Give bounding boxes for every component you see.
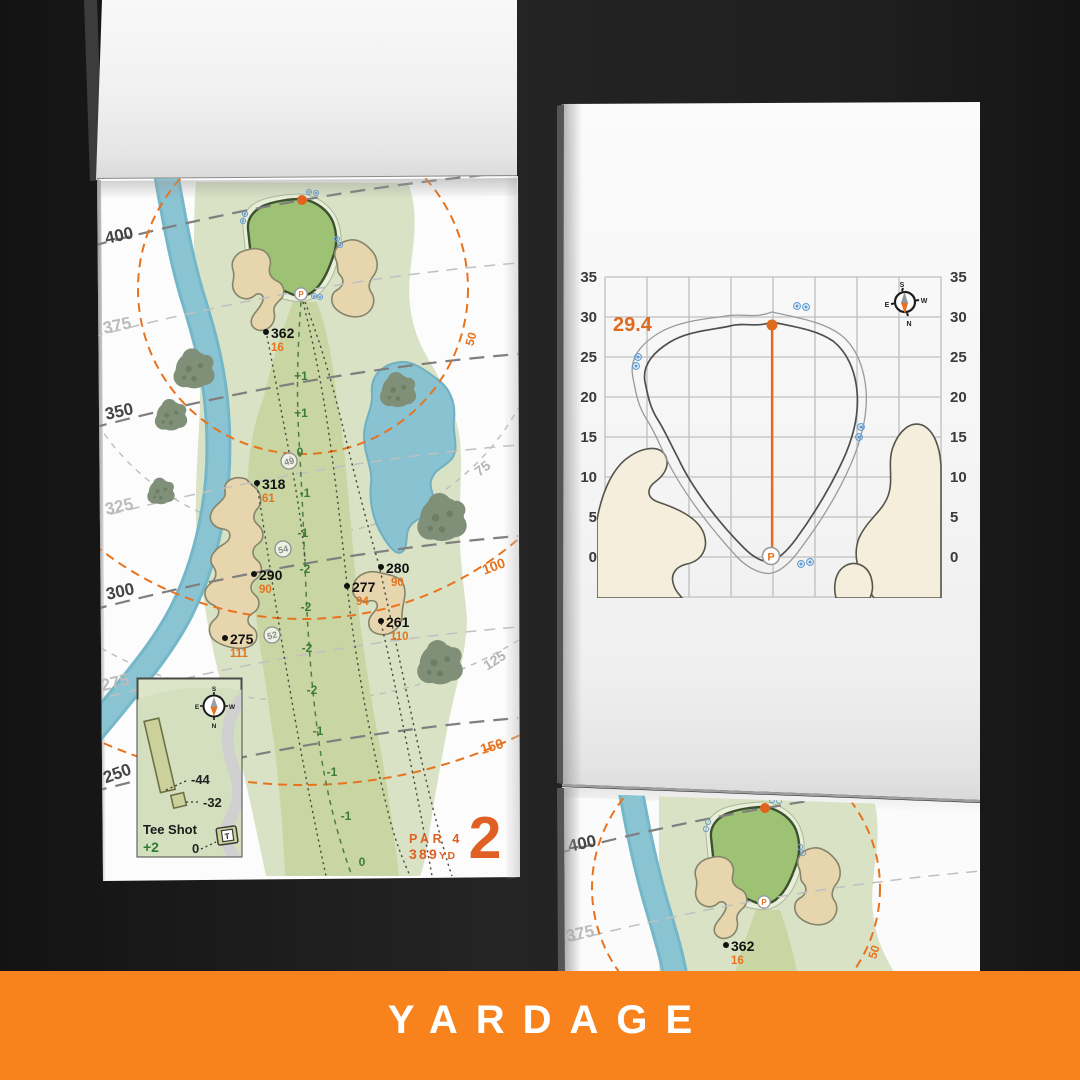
svg-text:277: 277 <box>352 579 376 595</box>
svg-text:N: N <box>212 723 217 730</box>
svg-text:5: 5 <box>950 509 958 526</box>
svg-text:+1: +1 <box>294 369 308 383</box>
svg-text:90: 90 <box>259 584 272 596</box>
svg-text:35: 35 <box>950 269 967 286</box>
svg-text:25: 25 <box>580 349 597 366</box>
svg-text:0: 0 <box>297 445 304 459</box>
svg-text:29.4: 29.4 <box>613 314 653 336</box>
svg-text:E: E <box>195 704 200 711</box>
svg-text:261: 261 <box>386 614 410 630</box>
svg-text:90: 90 <box>391 577 404 589</box>
svg-text:0: 0 <box>359 855 366 869</box>
svg-text:S: S <box>212 686 217 693</box>
svg-text:YARDAGE: YARDAGE <box>388 998 710 1042</box>
svg-text:-44: -44 <box>191 772 211 787</box>
svg-text:PAR 4: PAR 4 <box>409 832 463 846</box>
svg-text:15: 15 <box>950 429 967 446</box>
svg-text:P: P <box>761 898 767 907</box>
svg-text:5: 5 <box>589 509 597 526</box>
svg-text:30: 30 <box>580 309 597 326</box>
svg-text:P: P <box>767 552 774 564</box>
svg-text:280: 280 <box>386 560 410 576</box>
svg-text:362: 362 <box>731 938 755 954</box>
svg-text:-1: -1 <box>341 809 352 823</box>
svg-text:-2: -2 <box>302 641 313 655</box>
svg-text:S: S <box>900 282 905 289</box>
svg-text:15: 15 <box>580 429 597 446</box>
svg-text:+2: +2 <box>143 839 159 855</box>
svg-text:-2: -2 <box>300 562 311 576</box>
svg-text:30: 30 <box>950 309 967 326</box>
svg-text:94: 94 <box>356 596 369 608</box>
svg-text:35: 35 <box>580 269 597 286</box>
svg-text:275: 275 <box>230 631 254 647</box>
svg-text:362: 362 <box>271 325 295 341</box>
svg-text:-1: -1 <box>298 526 309 540</box>
svg-text:61: 61 <box>262 493 275 505</box>
svg-text:10: 10 <box>950 469 967 486</box>
svg-text:0: 0 <box>950 549 958 566</box>
svg-text:111: 111 <box>230 648 249 660</box>
svg-text:P: P <box>298 290 304 299</box>
svg-text:W: W <box>921 298 928 305</box>
svg-text:10: 10 <box>580 469 597 486</box>
svg-text:290: 290 <box>259 567 283 583</box>
svg-text:318: 318 <box>262 476 286 492</box>
svg-text:-1: -1 <box>327 765 338 779</box>
svg-text:20: 20 <box>580 389 597 406</box>
svg-text:-32: -32 <box>203 795 222 810</box>
svg-text:16: 16 <box>271 342 284 354</box>
svg-text:Tee Shot: Tee Shot <box>143 822 198 837</box>
svg-text:110: 110 <box>390 631 409 643</box>
svg-text:N: N <box>906 321 911 328</box>
svg-text:25: 25 <box>950 349 967 366</box>
svg-text:E: E <box>885 302 890 309</box>
svg-text:20: 20 <box>950 389 967 406</box>
svg-text:2: 2 <box>469 805 502 871</box>
svg-text:16: 16 <box>731 955 744 967</box>
svg-text:-2: -2 <box>301 600 312 614</box>
svg-text:+1: +1 <box>294 406 308 420</box>
svg-text:-2: -2 <box>307 683 318 697</box>
svg-text:W: W <box>229 704 236 711</box>
svg-text:-1: -1 <box>300 486 311 500</box>
svg-text:-1: -1 <box>313 724 324 738</box>
svg-text:0: 0 <box>192 841 199 856</box>
svg-text:0: 0 <box>589 549 597 566</box>
